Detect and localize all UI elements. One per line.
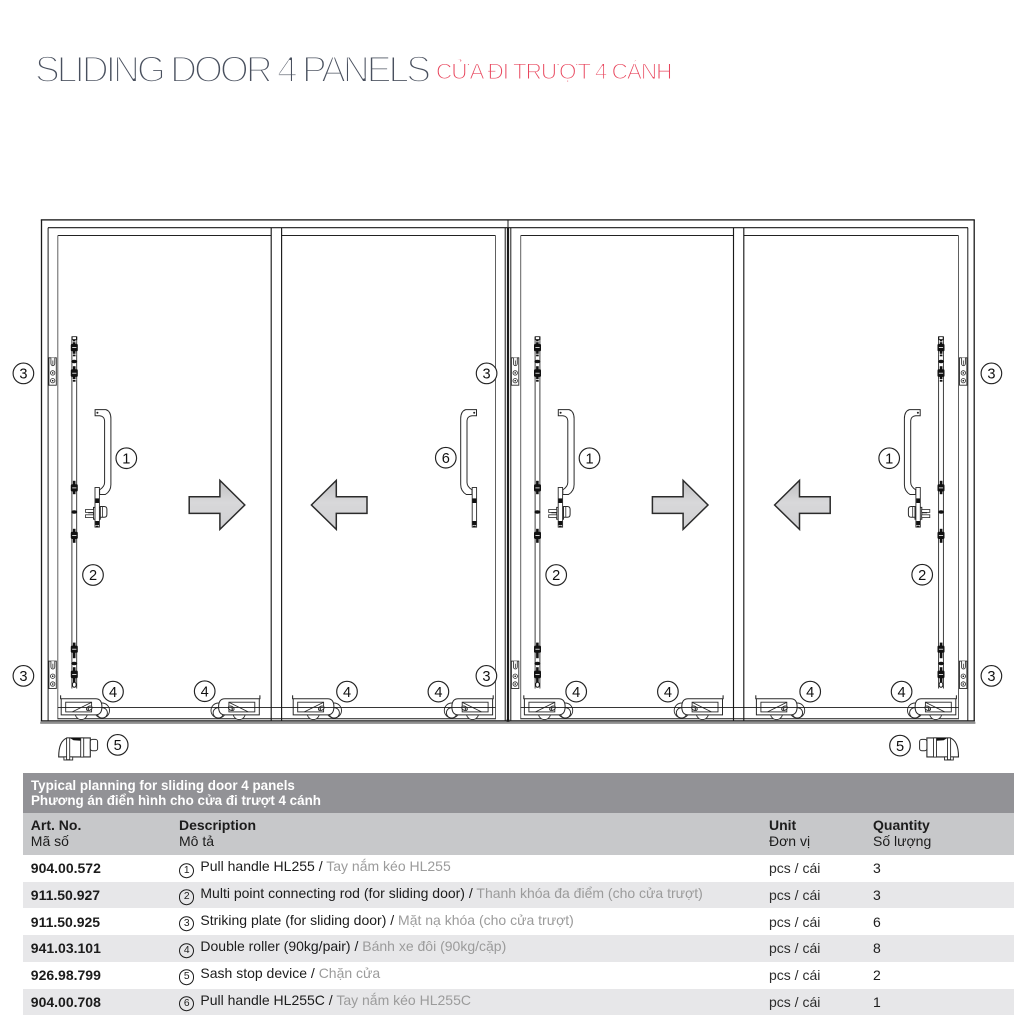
svg-text:4: 4 [109, 685, 117, 701]
svg-text:4: 4 [898, 685, 906, 701]
svg-text:1: 1 [885, 451, 893, 467]
svg-text:3: 3 [987, 669, 995, 685]
svg-text:3: 3 [483, 367, 491, 383]
svg-text:5: 5 [896, 739, 904, 755]
svg-text:1: 1 [122, 451, 130, 467]
svg-text:2: 2 [89, 568, 97, 584]
svg-text:4: 4 [806, 685, 814, 701]
svg-text:1: 1 [585, 451, 593, 467]
svg-text:4: 4 [664, 685, 672, 701]
svg-text:6: 6 [442, 451, 450, 467]
svg-text:3: 3 [19, 669, 27, 685]
svg-text:5: 5 [114, 738, 122, 754]
svg-text:3: 3 [987, 367, 995, 383]
svg-text:4: 4 [434, 685, 442, 701]
svg-text:3: 3 [19, 367, 27, 383]
svg-text:2: 2 [918, 568, 926, 584]
svg-text:4: 4 [572, 685, 580, 701]
svg-text:4: 4 [343, 685, 351, 701]
svg-text:2: 2 [552, 568, 560, 584]
svg-text:3: 3 [482, 669, 490, 685]
svg-text:4: 4 [201, 684, 209, 700]
